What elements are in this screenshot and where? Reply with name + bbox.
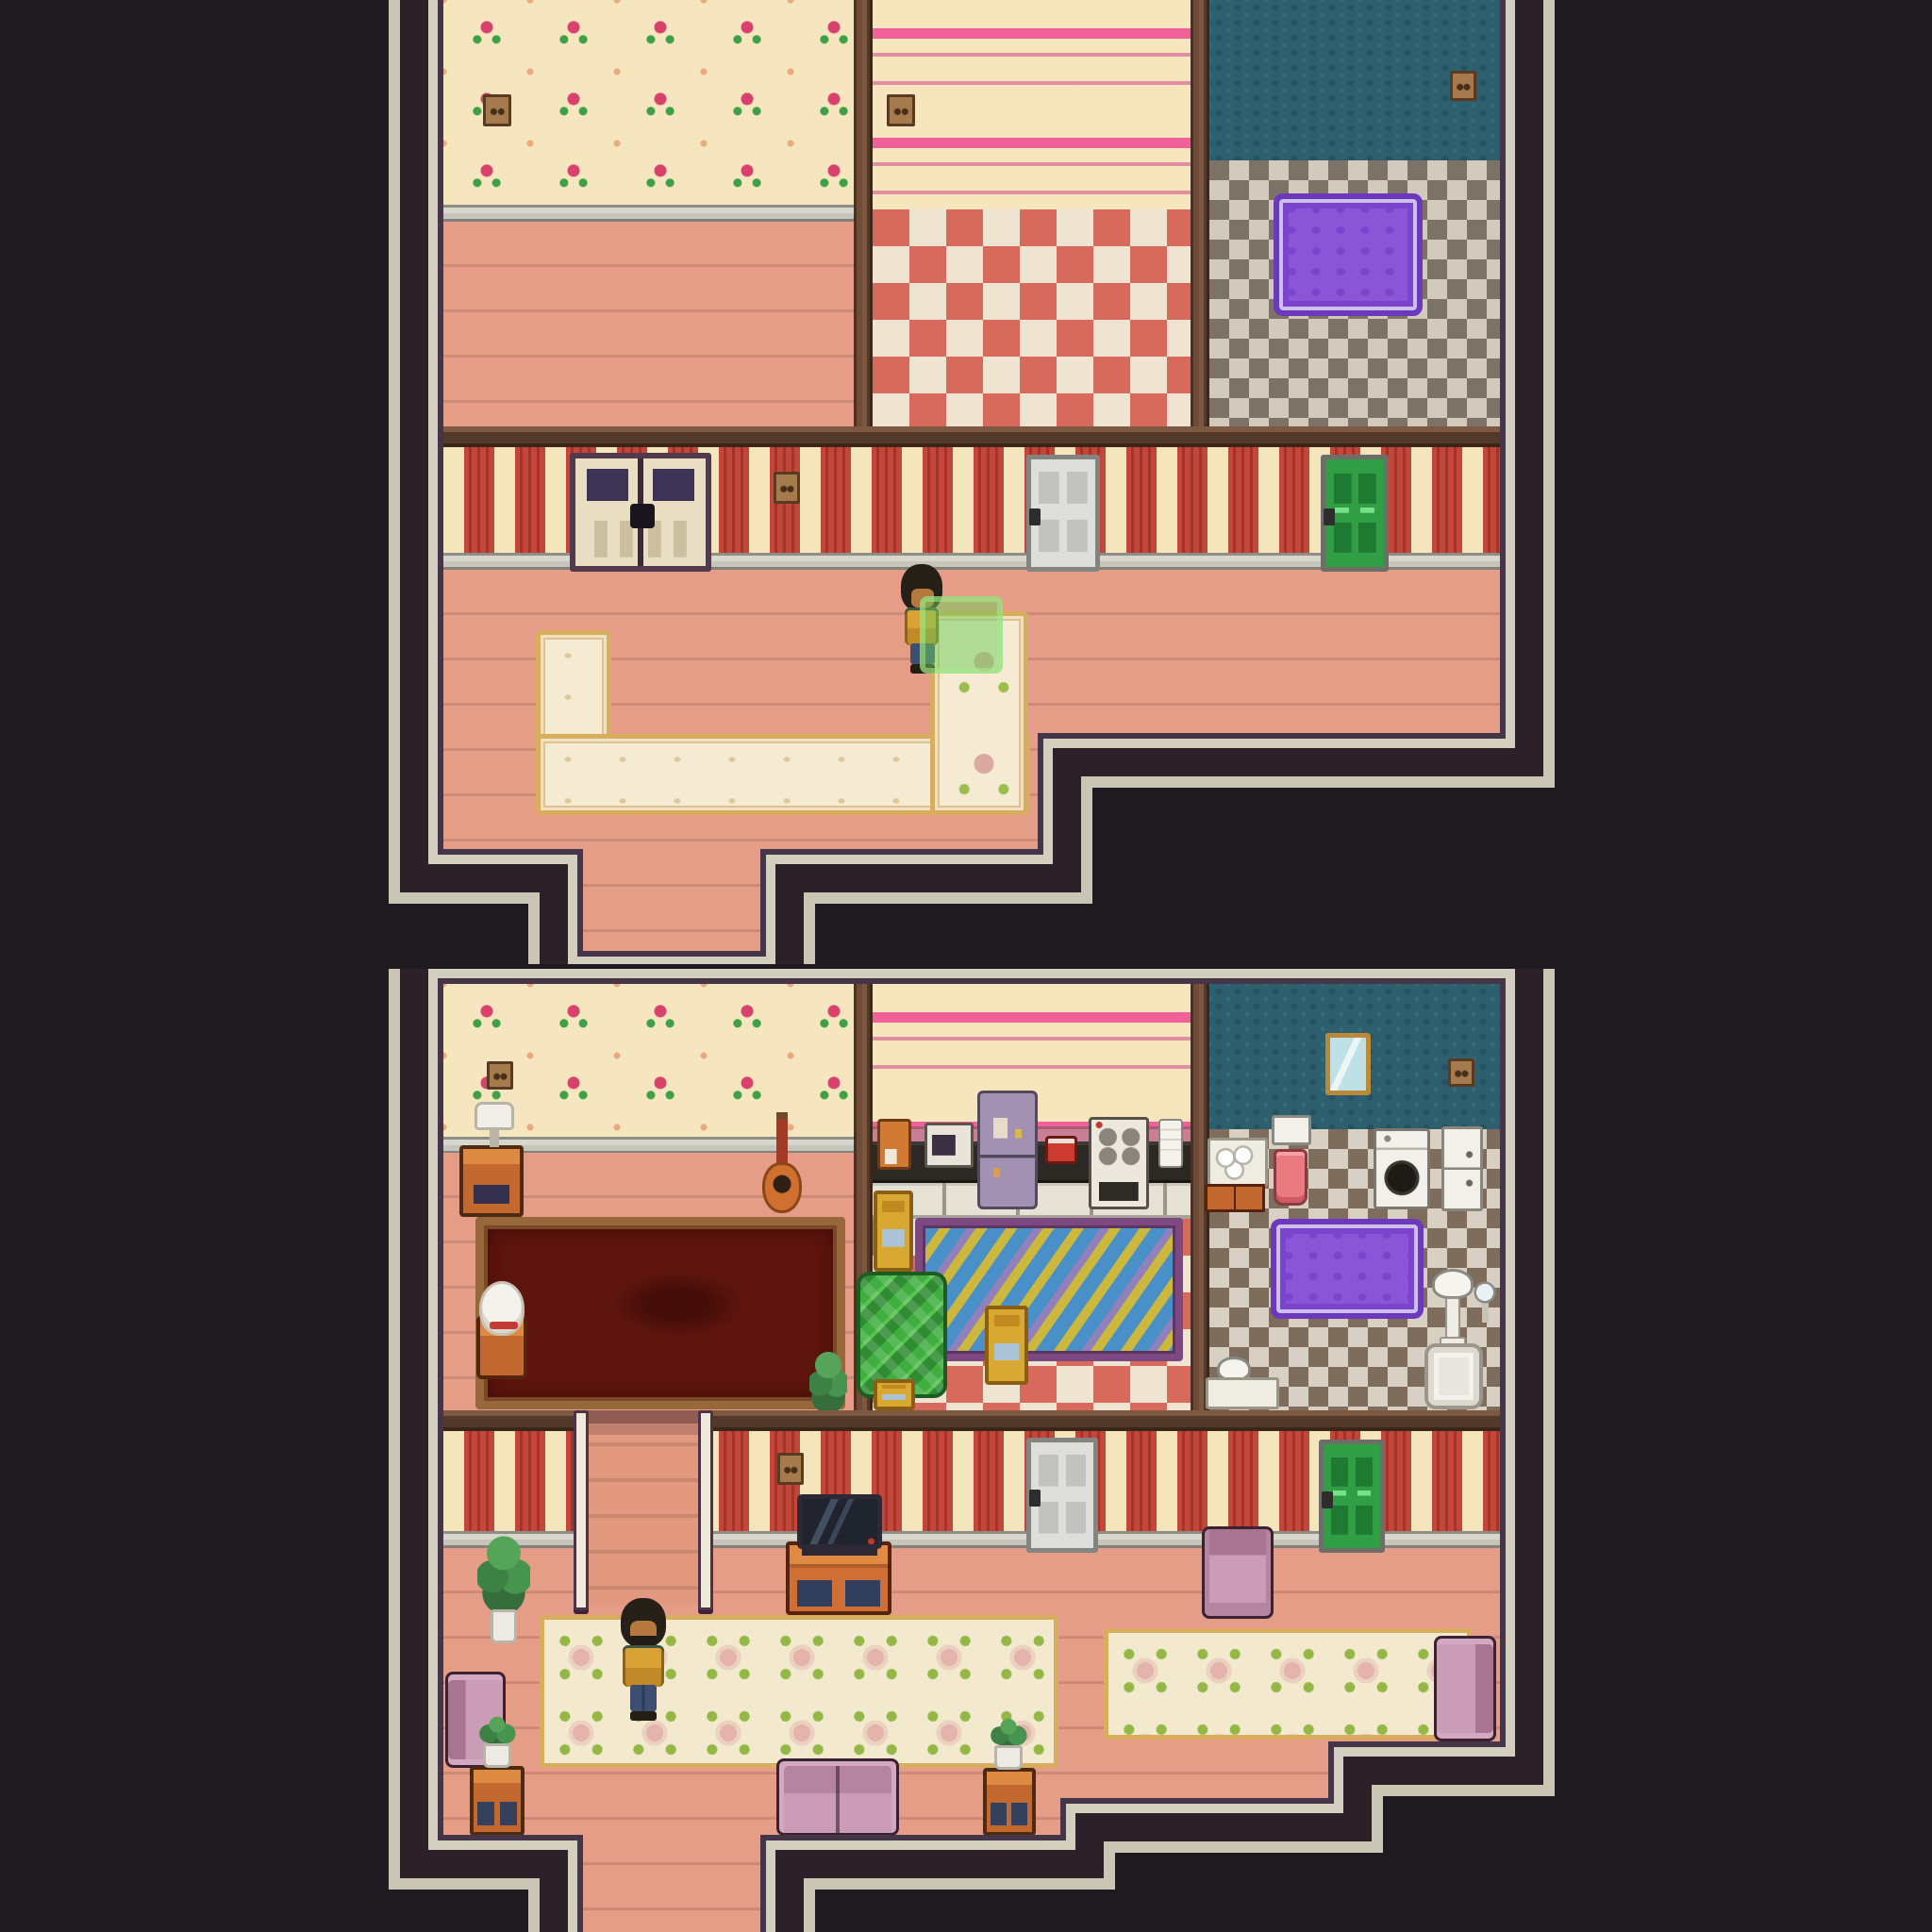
wallpaper-stripes-kitchen [873,0,1191,209]
tall-potted-plant[interactable] [477,1528,530,1645]
shaving-mirror[interactable] [1474,1281,1496,1324]
purple-fridge[interactable] [977,1091,1038,1209]
coffee-maker[interactable] [877,1119,911,1170]
door-handle [1029,508,1041,525]
yellow-chair[interactable] [985,1306,1028,1385]
rug-placement-ghost-tile [920,596,1003,674]
light-switch[interactable] [483,94,511,126]
floor-left-bedroom [443,222,854,426]
light-switch[interactable] [887,94,915,126]
plant-pot [483,1743,511,1768]
plate-stack[interactable] [1158,1119,1183,1168]
bathroom-purple-rug [1274,193,1423,316]
pedestal-sink[interactable] [1432,1269,1474,1352]
hallway-top-beam [443,426,1500,447]
character-pants [630,1685,657,1711]
green-door[interactable] [1319,1440,1385,1553]
stove-oven[interactable] [1089,1117,1149,1209]
light-switch[interactable] [1448,1058,1474,1087]
plant-leaves [477,1528,530,1611]
stair-rail-right [698,1410,713,1610]
dog-collar [490,1322,518,1329]
lamp-shade [475,1102,514,1130]
lamp-stem [490,1130,499,1147]
yellow-chair[interactable] [874,1379,915,1410]
white-dog[interactable] [479,1281,525,1336]
hallway-runner-rug [1104,1628,1472,1740]
light-switch[interactable] [777,1453,804,1485]
plant-leaves [477,1715,517,1747]
toilet-paper-counter[interactable] [1207,1138,1268,1187]
door-handle [1322,1491,1333,1508]
bathroom-mirror[interactable] [1325,1033,1371,1095]
potted-plant[interactable] [987,1717,1030,1772]
end-table[interactable] [983,1768,1036,1836]
room-divider-wall [854,0,873,426]
sink-basin [1432,1269,1474,1299]
player-character[interactable] [621,1598,666,1723]
potted-plant[interactable] [809,1345,847,1411]
red-toaster[interactable] [1045,1136,1077,1164]
potted-plant[interactable] [474,1715,521,1770]
guitar-body [762,1162,802,1213]
room-divider-wall [1191,0,1209,426]
toilet-tank[interactable] [1272,1115,1311,1145]
character-jacket [623,1645,664,1687]
acoustic-guitar[interactable] [760,1119,804,1215]
plant-pot [994,1745,1023,1770]
plant-pot [491,1609,517,1643]
table-lamp[interactable] [473,1102,516,1151]
white-door[interactable] [1026,455,1100,572]
pink-sofa[interactable] [776,1758,899,1836]
light-switch[interactable] [1450,71,1476,101]
orange-cabinet[interactable] [1205,1184,1265,1212]
bathtub[interactable] [1424,1343,1483,1409]
door-handle [1324,508,1335,525]
stair-rail-left [574,1410,589,1610]
green-door[interactable] [1321,455,1389,572]
sink-column [1445,1297,1460,1339]
corner-counter[interactable] [1206,1377,1279,1409]
washing-machine[interactable] [1374,1128,1430,1209]
double-door-handles [630,504,655,528]
plant-leaves [989,1717,1028,1749]
character-shoes [630,1711,657,1721]
game-viewport[interactable] [0,0,1932,1932]
living-room-rug [540,1615,1058,1768]
tv-stand[interactable] [786,1541,891,1615]
bathroom-purple-rug [1271,1219,1424,1319]
white-cabinet[interactable] [1441,1126,1483,1211]
striped-kitchen-rug [915,1218,1183,1361]
flatscreen-tv[interactable] [797,1494,882,1549]
large-red-rug [475,1217,845,1409]
floor-kitchen-checker [873,209,1191,426]
stairwell-opening[interactable] [574,1410,713,1610]
light-switch[interactable] [487,1061,513,1090]
double-door[interactable] [570,453,711,572]
yellow-chair[interactable] [874,1191,913,1272]
baseboard-left [443,205,854,222]
pink-toilet[interactable] [1274,1149,1307,1206]
pink-armchair[interactable] [1202,1526,1274,1619]
guitar-neck [776,1119,788,1168]
microwave[interactable] [924,1123,974,1168]
light-switch[interactable] [774,472,800,504]
stair-steps [589,1410,698,1605]
end-table[interactable] [470,1766,525,1836]
door-handle [1029,1490,1041,1507]
nightstand[interactable] [459,1145,524,1217]
pink-loveseat[interactable] [1434,1636,1496,1741]
white-door[interactable] [1026,1438,1098,1553]
